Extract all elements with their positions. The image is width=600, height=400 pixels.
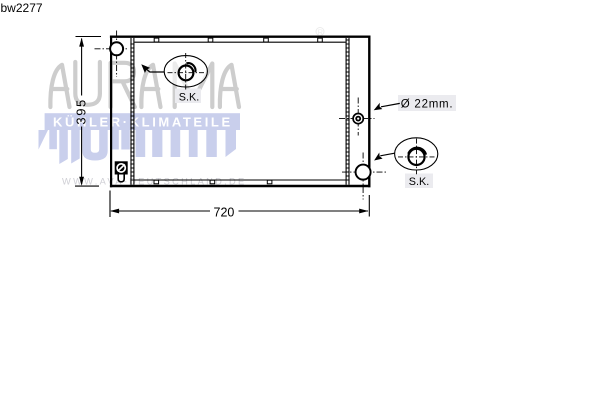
svg-text:Ø 22mm.: Ø 22mm. [401,99,454,111]
svg-text:720: 720 [214,205,235,219]
svg-text:S.K.: S.K. [409,176,429,188]
svg-text:R: R [318,27,324,36]
svg-text:bw2277: bw2277 [1,1,43,15]
svg-text:395: 395 [74,98,89,125]
svg-text:S.K.: S.K. [179,91,199,103]
